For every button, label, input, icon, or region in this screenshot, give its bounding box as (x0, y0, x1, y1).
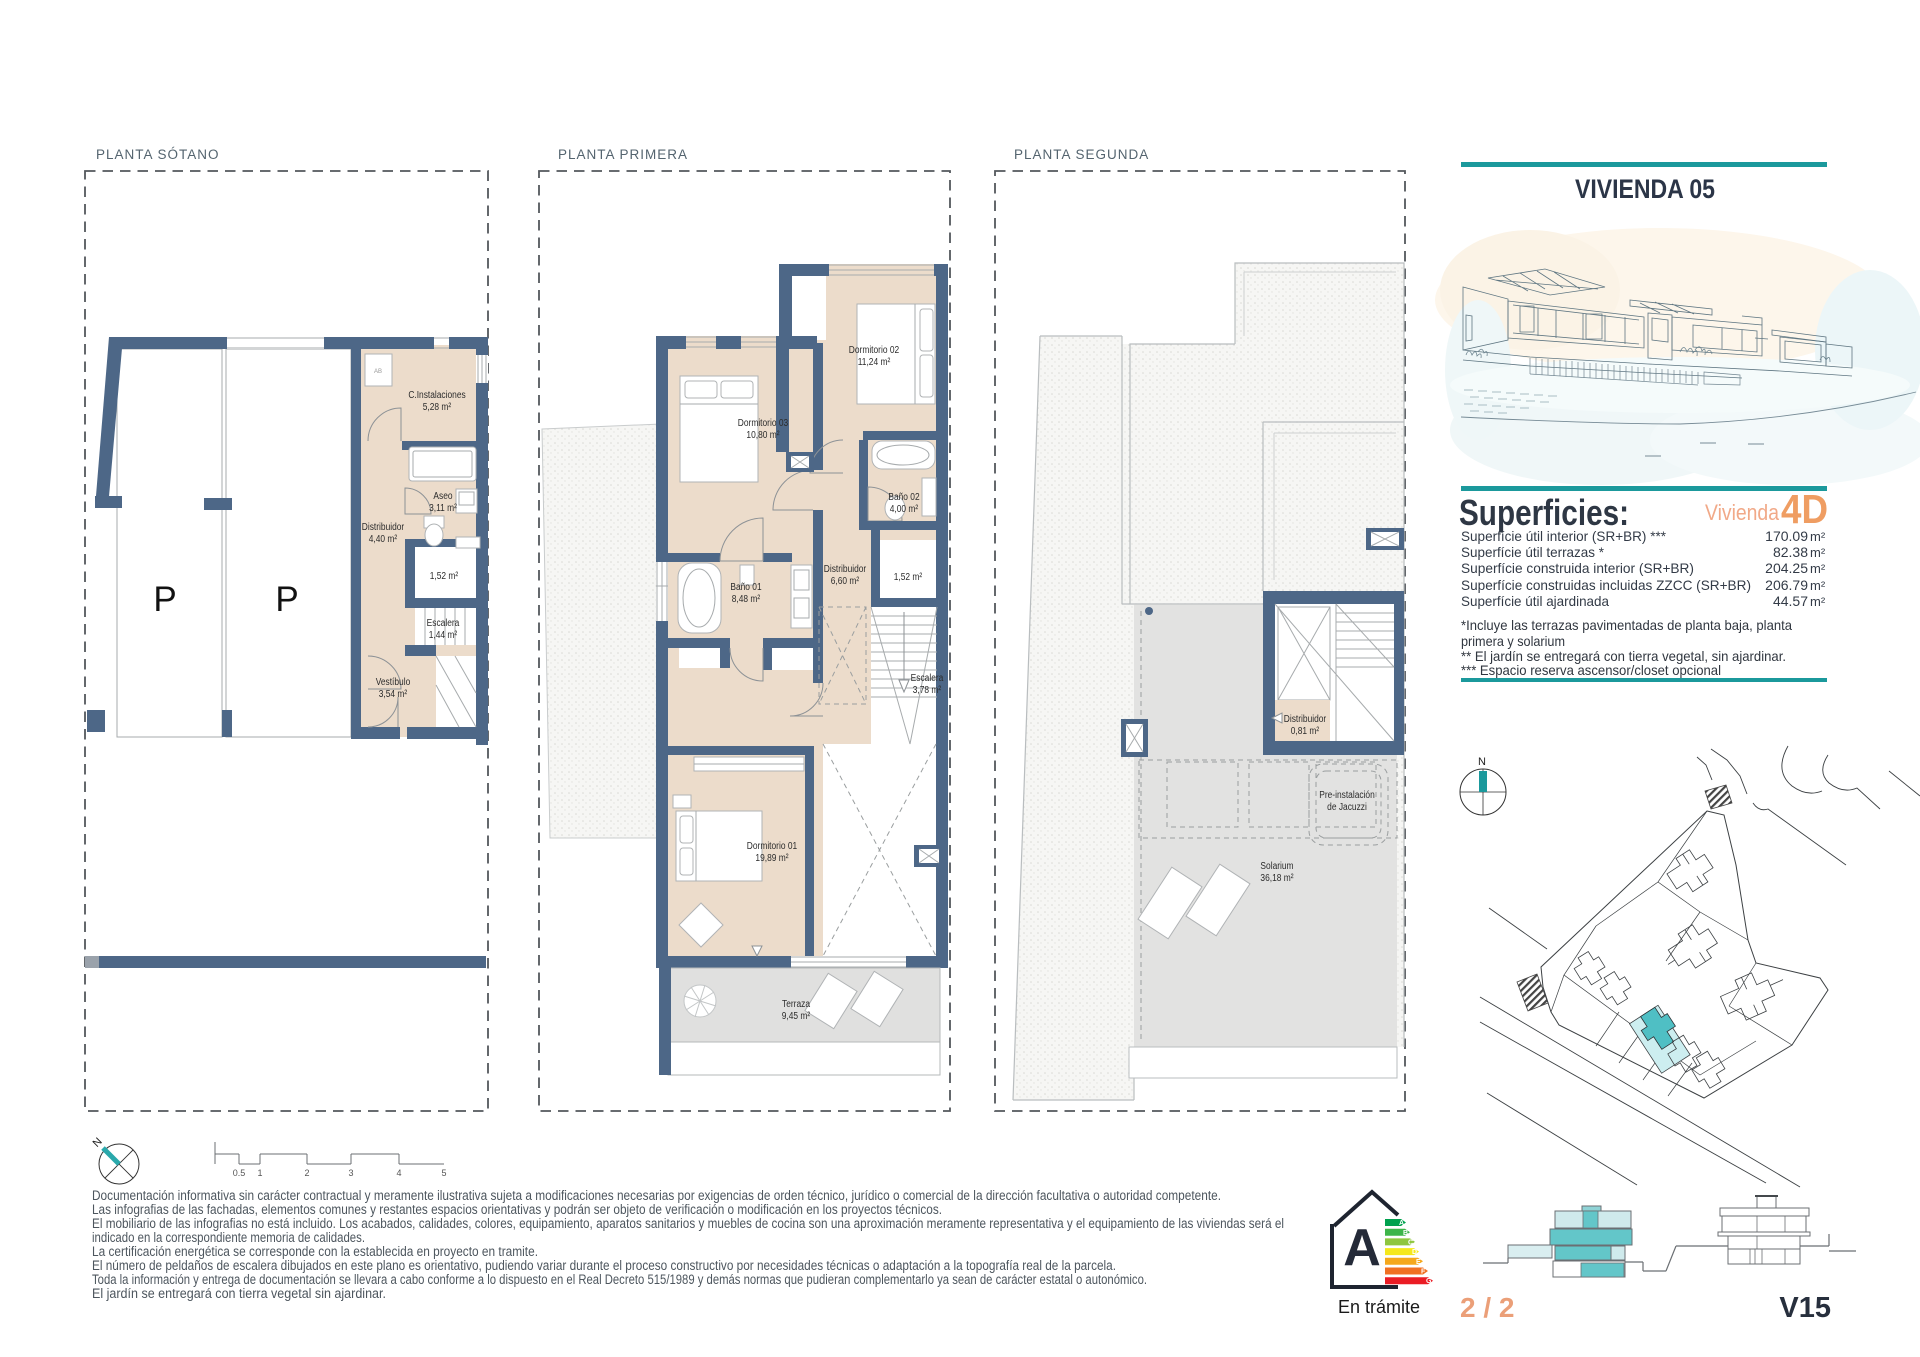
svg-text:Superfície construida interior: Superfície construida interior (SR+BR) (1461, 560, 1694, 576)
svg-text:A: A (1399, 1220, 1404, 1227)
svg-text:Superfície construidas incluid: Superfície construidas incluidas ZZCC (S… (1461, 577, 1751, 593)
svg-text:Dormitorio 02: Dormitorio 02 (849, 344, 899, 356)
svg-text:El jardín se entregará con tie: El jardín se entregará con tierra vegeta… (92, 1286, 386, 1301)
svg-text:m²: m² (1810, 529, 1826, 544)
svg-text:Escalera: Escalera (427, 617, 460, 629)
svg-text:Superfície útil interior (SR+B: Superfície útil interior (SR+BR) *** (1461, 528, 1667, 544)
svg-text:de Jacuzzi: de Jacuzzi (1327, 801, 1367, 813)
svg-text:Documentación informativa sin: Documentación informativa sin carácter c… (92, 1188, 1221, 1203)
svg-text:1,44 m²: 1,44 m² (429, 629, 457, 641)
svg-text:170.09: 170.09 (1765, 528, 1808, 544)
svg-text:1: 1 (257, 1168, 262, 1178)
svg-text:E: E (1416, 1259, 1421, 1266)
svg-text:1,52 m²: 1,52 m² (430, 570, 458, 582)
svg-text:P: P (153, 580, 176, 619)
svg-text:Superfície útil terrazas *: Superfície útil terrazas * (1461, 544, 1605, 560)
svg-text:3,11 m²: 3,11 m² (429, 502, 457, 514)
svg-text:El número de peldaños de escal: El número de peldaños de escalera dibuja… (92, 1258, 1116, 1273)
svg-text:m²: m² (1810, 578, 1826, 593)
svg-text:5,28 m²: 5,28 m² (423, 401, 451, 413)
svg-text:N: N (91, 1136, 105, 1150)
svg-text:Vestíbulo: Vestíbulo (376, 676, 411, 688)
svg-text:82.38: 82.38 (1773, 544, 1808, 560)
svg-text:El mobiliario de las infografi: El mobiliario de las infografias no está… (92, 1216, 1284, 1231)
svg-text:44.57: 44.57 (1773, 593, 1808, 609)
svg-text:En trámite: En trámite (1338, 1297, 1420, 1317)
svg-text:11,24 m²: 11,24 m² (858, 356, 891, 368)
svg-text:Distribuidor: Distribuidor (362, 521, 404, 533)
svg-text:1,52 m²: 1,52 m² (894, 571, 922, 583)
svg-text:Dormitorio 01: Dormitorio 01 (747, 840, 797, 852)
svg-text:PLANTA PRIMERA: PLANTA PRIMERA (558, 147, 688, 162)
svg-text:204.25: 204.25 (1765, 560, 1808, 576)
svg-text:5: 5 (441, 1168, 446, 1178)
svg-text:3: 3 (348, 1168, 353, 1178)
svg-text:AB: AB (374, 369, 382, 375)
svg-text:D: D (1412, 1249, 1417, 1256)
svg-text:9,45 m²: 9,45 m² (782, 1010, 810, 1022)
svg-text:Baño 01: Baño 01 (730, 581, 761, 593)
svg-text:2: 2 (304, 1168, 309, 1178)
svg-text:VIVIENDA 05: VIVIENDA 05 (1575, 174, 1715, 204)
svg-text:PLANTA SEGUNDA: PLANTA SEGUNDA (1014, 147, 1149, 162)
svg-text:m²: m² (1810, 594, 1826, 609)
svg-text:C.Instalaciones: C.Instalaciones (408, 389, 466, 401)
svg-text:G: G (1426, 1278, 1432, 1285)
svg-text:36,18 m²: 36,18 m² (1260, 872, 1293, 884)
svg-text:0,81 m²: 0,81 m² (1291, 725, 1319, 737)
svg-text:Dormitorio 03: Dormitorio 03 (738, 417, 788, 429)
svg-text:Pre-instalación: Pre-instalación (1319, 789, 1375, 801)
svg-text:19,89 m²: 19,89 m² (755, 852, 788, 864)
svg-text:m²: m² (1810, 545, 1826, 560)
svg-text:P: P (275, 580, 298, 619)
svg-text:*** Espacio reserva ascensor/c: *** Espacio reserva ascensor/closet opci… (1461, 662, 1721, 678)
svg-text:Solarium: Solarium (1260, 860, 1293, 872)
svg-text:10,80 m²: 10,80 m² (746, 429, 779, 441)
svg-text:La certificación energética se: La certificación energética se correspon… (92, 1244, 538, 1259)
svg-text:N: N (1478, 756, 1486, 768)
svg-text:2 / 2: 2 / 2 (1460, 1292, 1514, 1323)
svg-text:indicado en la correspondiente: indicado en la correspondiente memoria d… (92, 1230, 365, 1245)
svg-text:6,60 m²: 6,60 m² (831, 575, 859, 587)
svg-text:Distribuidor: Distribuidor (1284, 713, 1326, 725)
svg-text:F: F (1421, 1269, 1426, 1276)
svg-text:Vivienda: Vivienda (1705, 500, 1780, 525)
svg-text:V15: V15 (1779, 1292, 1831, 1324)
svg-text:4: 4 (396, 1168, 401, 1178)
svg-text:4D: 4D (1781, 486, 1828, 532)
svg-text:8,48 m²: 8,48 m² (732, 593, 760, 605)
svg-text:3,54 m²: 3,54 m² (379, 688, 407, 700)
svg-text:Terraza: Terraza (782, 998, 811, 1010)
svg-text:3,78 m²: 3,78 m² (913, 684, 941, 696)
svg-text:m²: m² (1810, 561, 1826, 576)
svg-text:A: A (1343, 1219, 1381, 1277)
svg-text:Baño 02: Baño 02 (888, 491, 919, 503)
svg-text:PLANTA SÓTANO: PLANTA SÓTANO (96, 147, 220, 162)
svg-text:Superfície útil ajardinada: Superfície útil ajardinada (1461, 593, 1609, 609)
svg-text:Escalera: Escalera (911, 672, 944, 684)
svg-text:B: B (1403, 1230, 1408, 1237)
svg-text:*Incluye las terrazas paviment: *Incluye las terrazas pavimentadas de pl… (1461, 617, 1792, 633)
svg-text:C: C (1408, 1240, 1413, 1247)
svg-text:4,00 m²: 4,00 m² (890, 503, 918, 515)
svg-text:Aseo: Aseo (433, 490, 452, 502)
svg-text:Toda la información y entrega: Toda la información y entrega de documen… (92, 1272, 1147, 1287)
svg-text:206.79: 206.79 (1765, 577, 1808, 593)
svg-text:0.5: 0.5 (233, 1168, 246, 1178)
svg-text:Superficies:: Superficies: (1459, 492, 1629, 533)
svg-text:primera y solarium: primera y solarium (1461, 633, 1565, 649)
svg-text:4,40 m²: 4,40 m² (369, 533, 397, 545)
svg-text:Distribuidor: Distribuidor (824, 563, 866, 575)
svg-text:Las infografias de las fachada: Las infografias de las fachadas, element… (92, 1202, 942, 1217)
